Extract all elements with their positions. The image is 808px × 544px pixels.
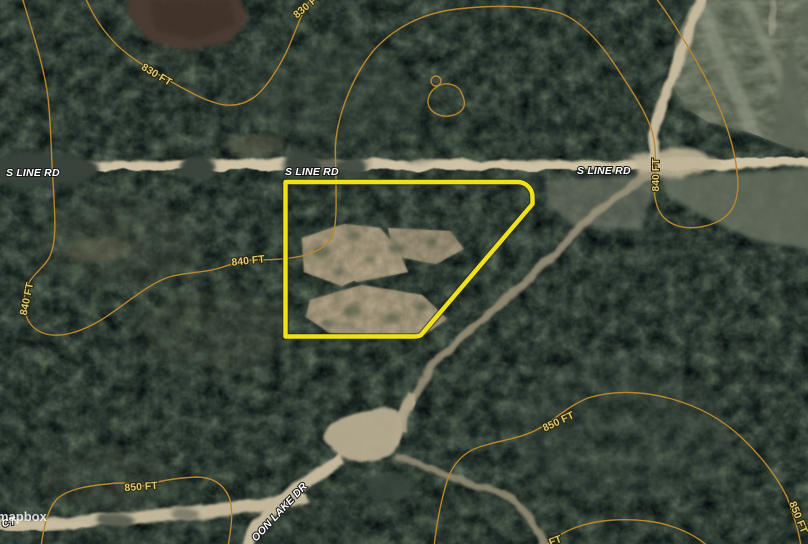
svg-text:S LINE RD: S LINE RD [577, 165, 631, 177]
svg-text:840 FT: 840 FT [650, 158, 662, 192]
svg-text:S LINE RD: S LINE RD [6, 167, 60, 179]
svg-text:850 FT: 850 FT [124, 480, 159, 494]
svg-text:S LINE RD: S LINE RD [285, 166, 339, 178]
svg-text:mapbox: mapbox [0, 509, 48, 524]
